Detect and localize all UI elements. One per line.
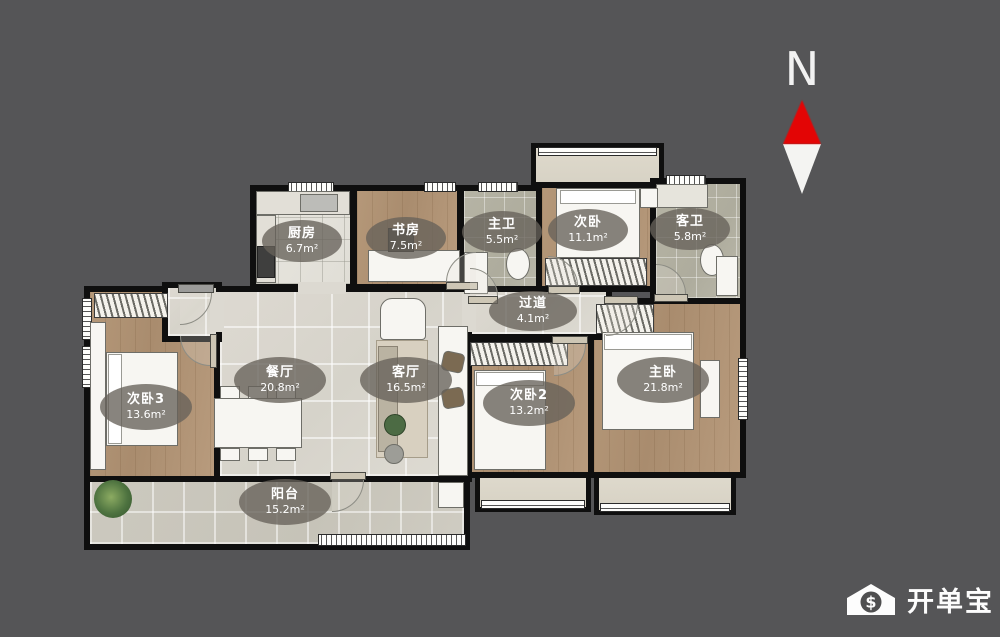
- window: [538, 147, 657, 156]
- room-label-bedroom-third: 次卧3 13.6m²: [100, 384, 192, 430]
- guest-bath-door: [654, 294, 688, 302]
- balcony-railing: [318, 534, 466, 546]
- room-name: 客卫: [676, 214, 704, 230]
- pillow: [604, 334, 692, 350]
- room-name: 主卫: [488, 217, 516, 233]
- room-area: 20.8m²: [260, 381, 300, 395]
- room-area: 21.8m²: [643, 381, 683, 395]
- dining-chair: [276, 448, 296, 461]
- dining-table: [214, 398, 302, 448]
- room-area: 11.1m²: [568, 231, 608, 245]
- window: [481, 500, 585, 509]
- svg-text:$: $: [865, 592, 876, 611]
- plant-living: [384, 414, 406, 436]
- floor-plan: 厨房 6.7m² 书房 7.5m² 主卫 5.5m² 次卧 11.1m² 客卫 …: [0, 0, 1000, 637]
- room-area: 7.5m²: [390, 239, 423, 253]
- master-bedroom-door: [604, 296, 638, 304]
- armchair: [380, 298, 426, 340]
- room-name: 阳台: [271, 487, 299, 503]
- room-name: 客厅: [392, 365, 420, 381]
- room-area: 13.2m²: [509, 404, 549, 418]
- compass-white-arrow-icon: [783, 144, 821, 194]
- watermark-brand: $ 开单宝: [842, 580, 994, 619]
- window: [478, 182, 518, 192]
- compass: N: [772, 46, 832, 194]
- window: [424, 182, 456, 192]
- nightstand: [640, 188, 658, 208]
- room-area: 5.8m²: [674, 230, 707, 244]
- house-dollar-icon: $: [842, 583, 900, 617]
- room-name: 次卧3: [127, 392, 165, 408]
- dining-chair: [248, 448, 268, 461]
- room-area: 13.6m²: [126, 408, 166, 422]
- room-area: 5.5m²: [486, 233, 519, 247]
- balcony-cabinet: [438, 482, 464, 508]
- room-label-guest-bath: 客卫 5.8m²: [650, 208, 730, 250]
- room-label-bedroom-second: 次卧 11.1m²: [548, 209, 628, 251]
- room-area: 16.5m²: [386, 381, 426, 395]
- vanity-guest-bath: [716, 256, 738, 296]
- room-name: 主卧: [649, 365, 677, 381]
- room-label-living: 客厅 16.5m²: [360, 357, 452, 403]
- compass-red-arrow-icon: [783, 100, 821, 144]
- room-name: 书房: [392, 223, 420, 239]
- coffee-table: [384, 444, 404, 464]
- room-area: 6.7m²: [286, 242, 319, 256]
- room-label-kitchen: 厨房 6.7m²: [262, 220, 342, 262]
- compass-north-label: N: [772, 46, 832, 92]
- room-label-dining: 餐厅 20.8m²: [234, 357, 326, 403]
- entry-door: [178, 284, 214, 293]
- passage-kitchen-dining: [298, 282, 346, 294]
- toilet-master-bath: [506, 248, 530, 280]
- kitchen-sink: [300, 194, 338, 212]
- room-area: 15.2m²: [265, 503, 305, 517]
- window: [600, 503, 730, 512]
- plant-balcony: [94, 480, 132, 518]
- room-label-balcony: 阳台 15.2m²: [239, 479, 331, 525]
- passage-entry-dining: [210, 292, 224, 332]
- room-label-hallway: 过道 4.1m²: [489, 291, 577, 331]
- room-name: 次卧: [574, 215, 602, 231]
- pillow: [560, 190, 636, 204]
- brand-text: 开单宝: [907, 580, 994, 619]
- wardrobe-bedroom-third: [94, 293, 168, 318]
- room-name: 次卧2: [510, 388, 548, 404]
- shower-guest-bath: [656, 184, 708, 208]
- room-name: 过道: [519, 296, 547, 312]
- room-area: 4.1m²: [517, 312, 550, 326]
- dining-chair: [220, 448, 240, 461]
- bedroom-third-door: [210, 334, 217, 368]
- bedroom-second2-door: [552, 336, 588, 344]
- room-label-study: 书房 7.5m²: [366, 217, 446, 259]
- room-name: 餐厅: [266, 365, 294, 381]
- room-label-master-bedroom: 主卧 21.8m²: [617, 357, 709, 403]
- room-name: 厨房: [288, 226, 316, 242]
- balcony-door: [330, 472, 366, 480]
- window: [738, 358, 748, 420]
- room-label-master-bath: 主卫 5.5m²: [462, 211, 542, 253]
- room-label-bedroom-second2: 次卧2 13.2m²: [483, 380, 575, 426]
